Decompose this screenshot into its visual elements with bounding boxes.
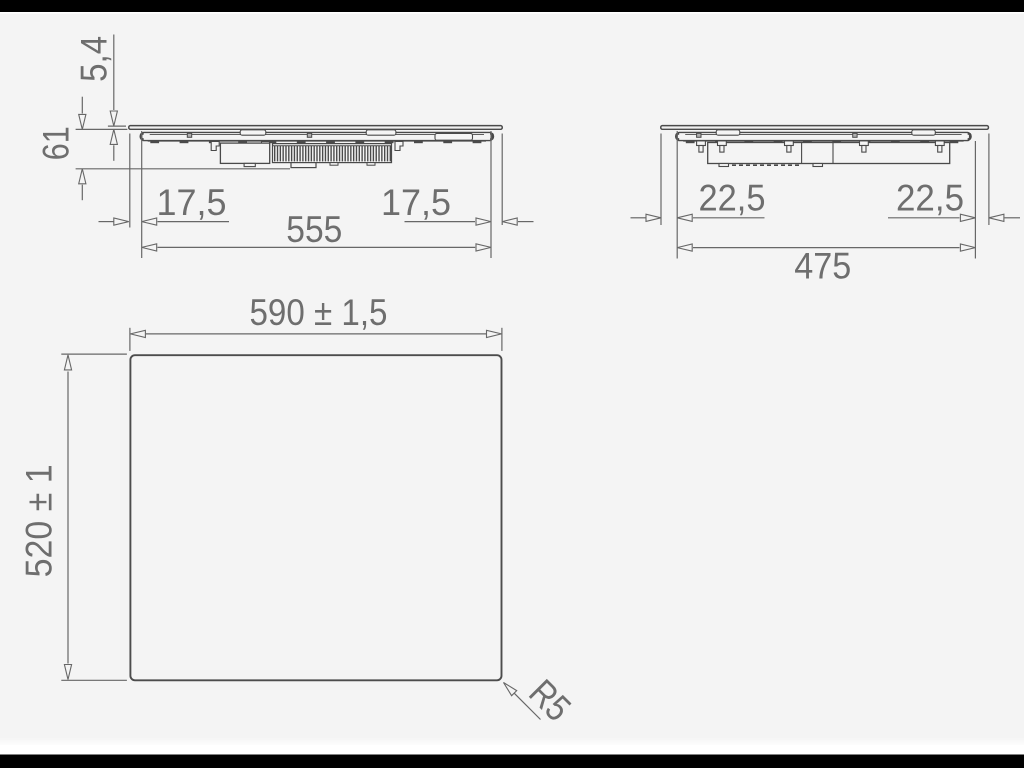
svg-text:61: 61	[36, 126, 77, 160]
svg-text:520 ± 1: 520 ± 1	[18, 464, 59, 577]
svg-text:22,5: 22,5	[699, 177, 766, 218]
svg-text:5,4: 5,4	[74, 36, 115, 82]
svg-text:17,5: 17,5	[157, 182, 227, 223]
svg-text:475: 475	[794, 245, 851, 286]
svg-text:555: 555	[286, 209, 342, 250]
svg-text:22,5: 22,5	[896, 177, 964, 218]
svg-text:17,5: 17,5	[381, 182, 451, 223]
svg-text:590 ± 1,5: 590 ± 1,5	[250, 292, 388, 333]
